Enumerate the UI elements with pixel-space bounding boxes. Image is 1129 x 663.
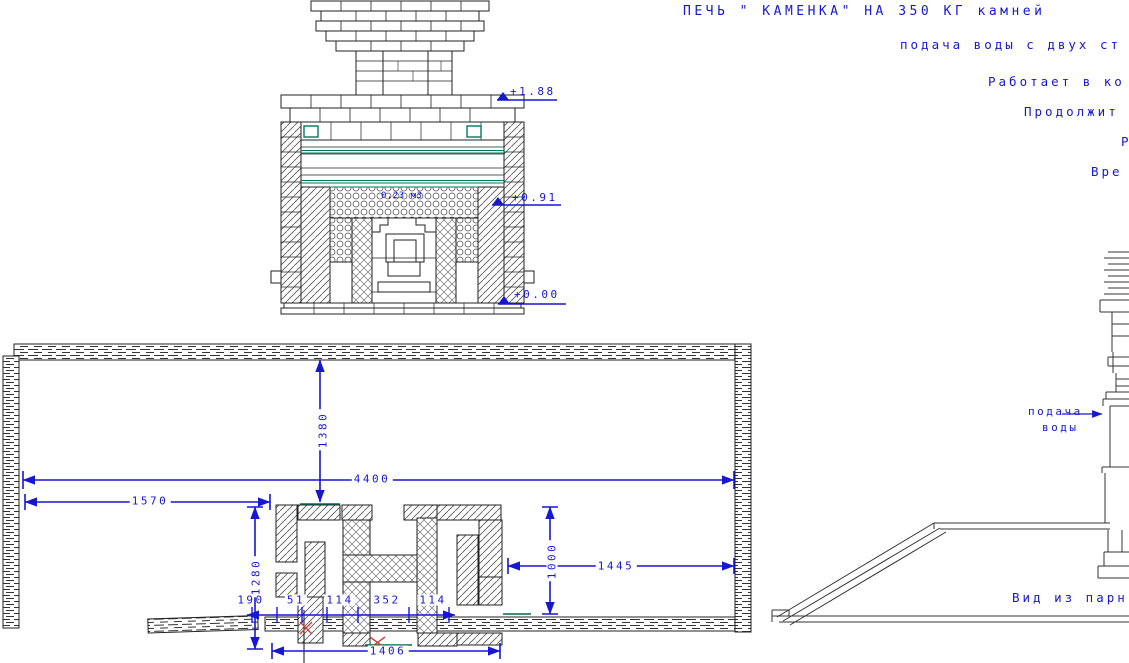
dim-label-1280: 1280	[251, 557, 262, 598]
perspective-view-drawing	[772, 252, 1129, 625]
note-duration: Продолжит	[1024, 106, 1119, 119]
dim-chain-114a: 114	[324, 595, 355, 606]
note-water-supply: подача воды с двух ст	[900, 39, 1121, 52]
dim-chain-114b: 114	[417, 595, 448, 606]
water-supply-label-line2: воды	[1042, 422, 1079, 433]
front-elevation-drawing	[271, 1, 534, 314]
drawing-linework	[0, 0, 1129, 663]
dim-label-1406: 1406	[368, 646, 409, 657]
dim-label-1570: 1570	[130, 496, 171, 507]
stones-volume-note: 0,23 м3	[381, 192, 422, 201]
dim-label-1445: 1445	[596, 561, 637, 572]
level-mark-base: +0.00	[514, 289, 560, 300]
dim-chain-51: 51	[285, 595, 307, 606]
dim-chain-190: 190	[237, 595, 264, 606]
note-clipped-2: Вре	[1091, 166, 1123, 179]
dim-label-4400: 4400	[352, 474, 393, 485]
drawing-title: ПЕЧЬ " КАМЕНКА" НА 350 КГ камней	[683, 5, 1045, 18]
note-operation: Работает в ко	[988, 76, 1125, 89]
dim-label-1380: 1380	[318, 410, 329, 451]
level-mark-middle: +0.91	[512, 192, 558, 203]
dim-label-1000: 1000	[547, 541, 558, 582]
view-caption: Вид из парн	[1012, 592, 1128, 605]
level-mark-top: +1.88	[510, 86, 556, 97]
note-clipped-1: Р	[1121, 136, 1129, 149]
dim-chain-352: 352	[371, 595, 402, 606]
dimension-lines	[23, 92, 1102, 659]
water-supply-label-line1: подача	[1028, 406, 1083, 417]
cad-drawing-canvas: ПЕЧЬ " КАМЕНКА" НА 350 КГ камней подача …	[0, 0, 1129, 663]
